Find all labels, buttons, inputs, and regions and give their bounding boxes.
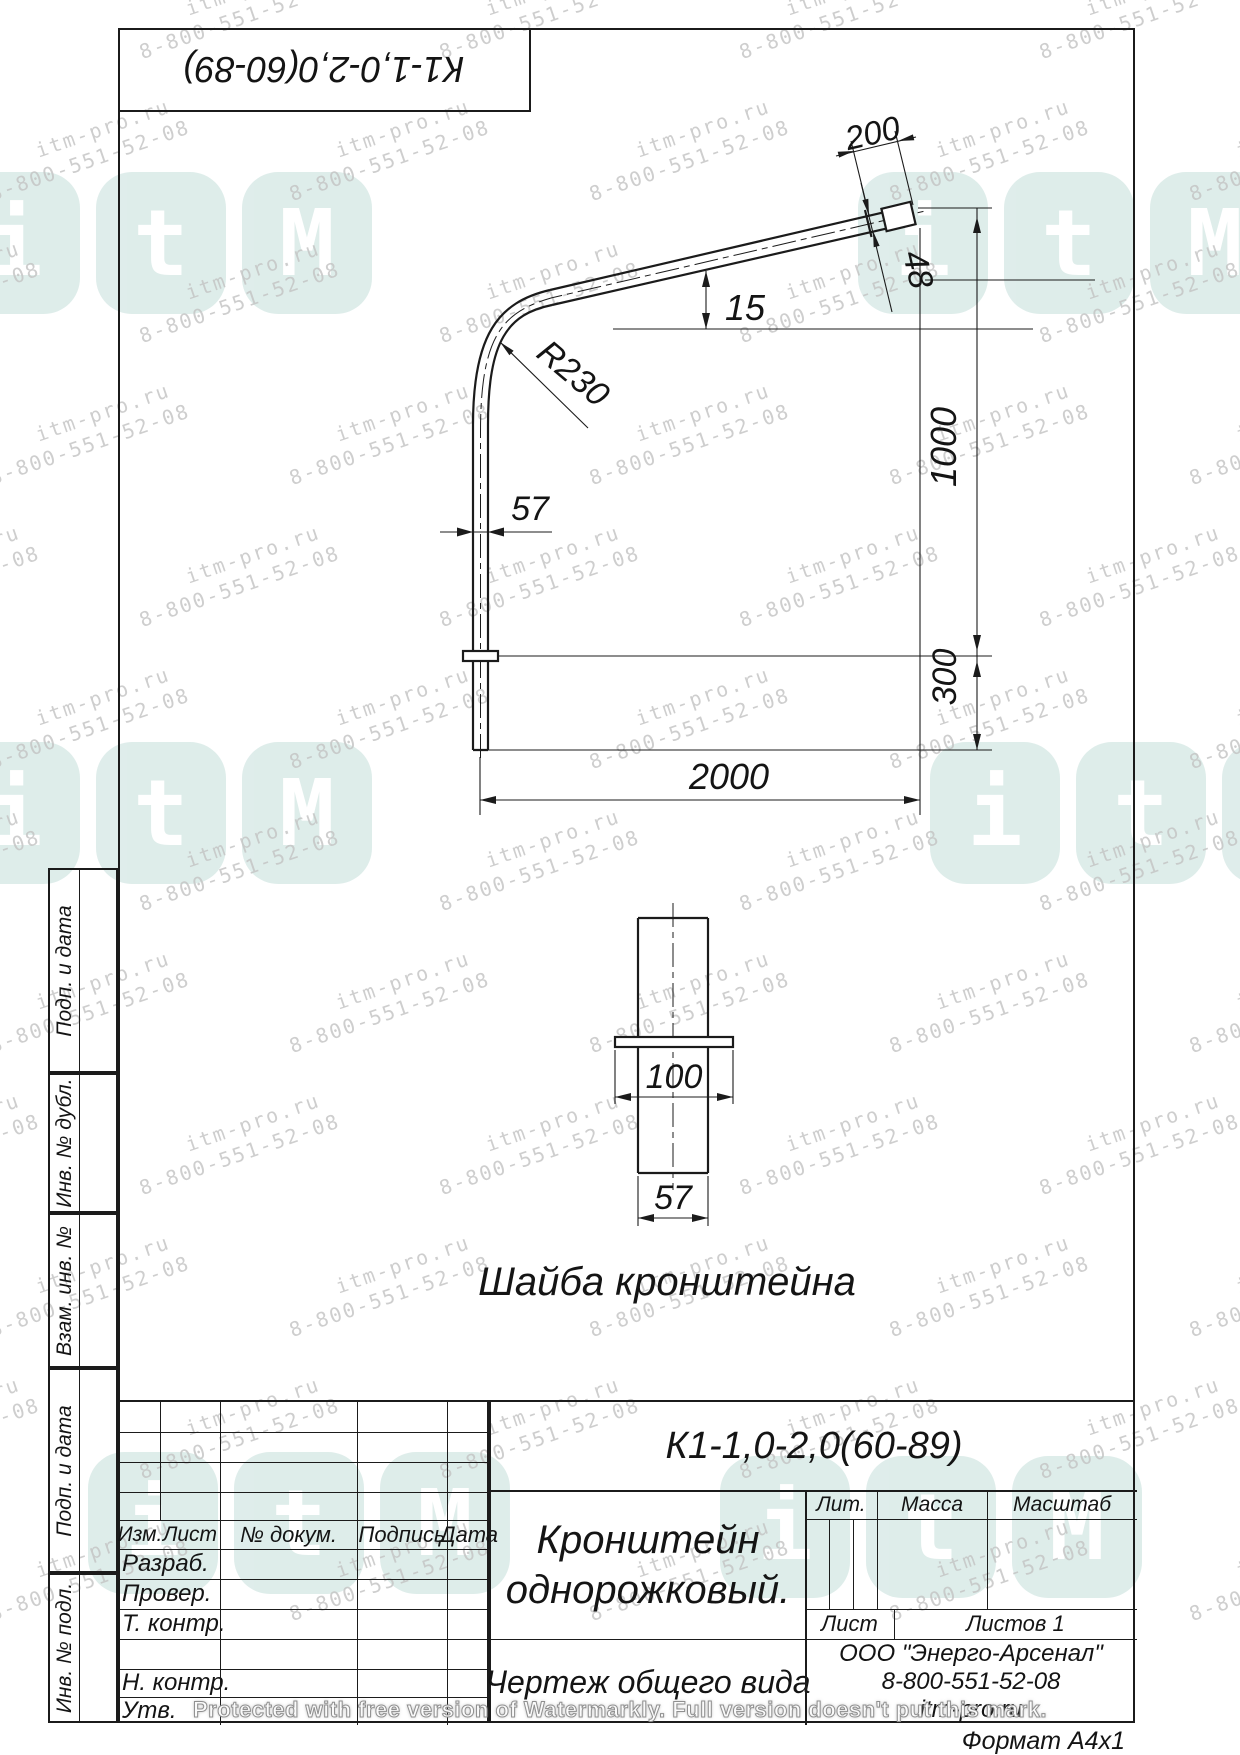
- main-view: 200 48 15 R230 57 1000 300 2000: [440, 108, 1095, 815]
- strip-divider: [79, 1215, 80, 1366]
- massa-header: Масса: [877, 1490, 987, 1519]
- grid-line: [805, 1519, 1137, 1520]
- rev-header-data: Дата: [447, 1520, 491, 1549]
- strip-divider: [79, 1075, 80, 1211]
- top-designation-box: К1-1,0-2,0(60-89): [118, 28, 531, 112]
- arm-end-sleeve: [881, 202, 915, 231]
- drawing-sheet: itMitMitMitMitMitM itm-pro.ru8-800-551-5…: [0, 0, 1240, 1755]
- strip-label: Инв. № подл.: [53, 1583, 77, 1713]
- grid-line: [357, 1402, 358, 1725]
- dim-arrows: [457, 134, 981, 804]
- rev-row-razrab: Разраб.: [122, 1549, 220, 1579]
- grid-line: [120, 1462, 491, 1463]
- strip-divider: [79, 1370, 80, 1571]
- grid-line: [805, 1609, 1137, 1610]
- grid-line: [120, 1432, 491, 1433]
- strip-divider: [79, 870, 80, 1071]
- rev-header-izm: Изм.: [120, 1520, 160, 1549]
- dim-lines: [440, 131, 1095, 815]
- rev-header-podpis: Подпись: [357, 1520, 447, 1549]
- dim-57-label: 57: [511, 490, 550, 528]
- rev-header-list: Лист: [160, 1520, 220, 1549]
- grid-line: [894, 1609, 895, 1639]
- grid-line: [120, 1549, 491, 1550]
- grid-line: [805, 1639, 1137, 1640]
- strip-podp-i-data-2: Подп. и дата: [48, 1368, 118, 1573]
- rev-row-prover: Провер.: [122, 1579, 220, 1609]
- strip-podp-i-data-1: Подп. и дата: [48, 868, 118, 1073]
- grid-line: [120, 1520, 491, 1521]
- strip-vzam-inv: Взам. инв. №: [48, 1213, 118, 1368]
- grid-line: [120, 1579, 491, 1580]
- grid-line: [160, 1402, 161, 1520]
- strip-label: Подп. и дата: [53, 1405, 77, 1536]
- masshtab-header: Масштаб: [987, 1490, 1137, 1519]
- format-label: Формат А4х1: [962, 1727, 1125, 1755]
- dim-2000-label: 2000: [688, 756, 769, 797]
- grid-line: [877, 1490, 878, 1609]
- watermarkly-protect-bar: Protected with free version of Watermark…: [0, 1697, 1240, 1723]
- company-phone: 8-800-551-52-08: [882, 1668, 1061, 1696]
- list-header: Лист: [805, 1609, 894, 1639]
- revision-table: Изм. Лист № докум. Подпись Дата Разраб. …: [118, 1400, 489, 1723]
- washer-flange: [615, 1037, 733, 1047]
- grid-line: [220, 1402, 221, 1725]
- grid-line: [805, 1490, 807, 1725]
- lit-header: Лит.: [805, 1490, 877, 1519]
- part-name-cell: Кронштейн однорожковый.: [491, 1490, 805, 1639]
- grid-line: [853, 1519, 854, 1609]
- rev-row-nkontr: Н. контр.: [122, 1669, 232, 1697]
- grid-line: [120, 1669, 491, 1670]
- pole-collar: [463, 651, 498, 661]
- dim-r230-label: R230: [530, 333, 617, 414]
- dim-1000-label: 1000: [923, 407, 964, 487]
- designation-cell: К1-1,0-2,0(60-89): [491, 1402, 1137, 1490]
- grid-line: [829, 1519, 830, 1609]
- dim-300-label: 300: [926, 649, 964, 706]
- washer-view: 100 57 Шайба кронштейна: [478, 903, 856, 1304]
- part-name-line1: Кронштейн: [536, 1515, 759, 1565]
- grid-line: [120, 1609, 491, 1610]
- strip-inv-dubl: Инв. № дубл.: [48, 1073, 118, 1213]
- grid-line: [447, 1402, 448, 1725]
- listov-value: Листов 1: [894, 1609, 1137, 1639]
- part-name-line2: однорожковый.: [506, 1565, 791, 1615]
- strip-label: Инв. № дубл.: [53, 1078, 77, 1207]
- grid-line: [491, 1639, 805, 1640]
- dim-48-label: 48: [895, 247, 941, 292]
- dim-200-label: 200: [840, 108, 904, 157]
- dim-100-label: 100: [646, 1058, 703, 1096]
- strip-label: Подп. и дата: [53, 905, 77, 1036]
- grid-line: [120, 1492, 491, 1493]
- rev-row-tkontr: Т. контр.: [122, 1609, 232, 1639]
- grid-line: [491, 1490, 1137, 1492]
- strip-label: Взам. инв. №: [53, 1226, 77, 1356]
- grid-line: [987, 1490, 988, 1609]
- title-block: К1-1,0-2,0(60-89) Кронштейн однорожковый…: [489, 1400, 1135, 1723]
- grid-line: [120, 1639, 491, 1640]
- dim-15-label: 15: [725, 287, 766, 328]
- rev-header-ndokum: № докум.: [220, 1520, 357, 1549]
- dim-w57-label: 57: [654, 1179, 693, 1217]
- washer-caption: Шайба кронштейна: [478, 1260, 856, 1304]
- centerline: [481, 211, 926, 758]
- top-designation-text: К1-1,0-2,0(60-89): [183, 48, 464, 90]
- company-name: ООО "Энерго-Арсенал": [839, 1640, 1103, 1668]
